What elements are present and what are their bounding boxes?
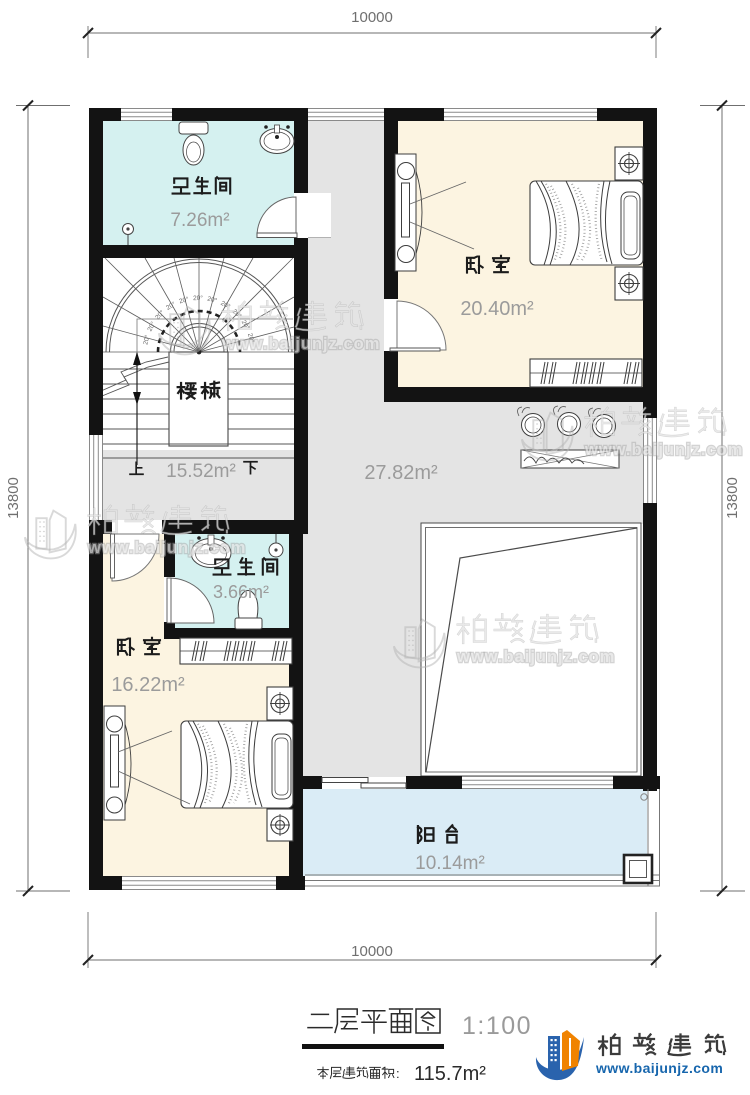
svg-text:www.baijunjz.com: www.baijunjz.com [595, 1060, 723, 1076]
svg-text:7.26m²: 7.26m² [170, 210, 229, 231]
svg-text:16.22m²: 16.22m² [111, 674, 185, 696]
svg-text:www.baijunjz.com: www.baijunjz.com [221, 335, 380, 353]
svg-text:15.52m²: 15.52m² [166, 461, 236, 482]
svg-text:27.82m²: 27.82m² [364, 462, 438, 484]
svg-text:20°: 20° [193, 294, 203, 302]
svg-text:13800: 13800 [724, 477, 741, 519]
svg-text::: : [396, 1066, 400, 1081]
svg-text:www.baijunjz.com: www.baijunjz.com [87, 539, 246, 557]
svg-text:10000: 10000 [351, 9, 393, 26]
svg-text:10.14m²: 10.14m² [415, 853, 485, 874]
svg-text:3.66m²: 3.66m² [213, 582, 269, 602]
svg-text:www.baijunjz.com: www.baijunjz.com [456, 648, 615, 666]
svg-text:13800: 13800 [5, 477, 22, 519]
svg-text:10000: 10000 [351, 943, 393, 960]
svg-text:1:100: 1:100 [462, 1012, 532, 1040]
svg-text:115.7m²: 115.7m² [414, 1063, 486, 1085]
svg-text:20.40m²: 20.40m² [460, 298, 534, 320]
svg-text:www.baijunjz.com: www.baijunjz.com [584, 441, 743, 459]
